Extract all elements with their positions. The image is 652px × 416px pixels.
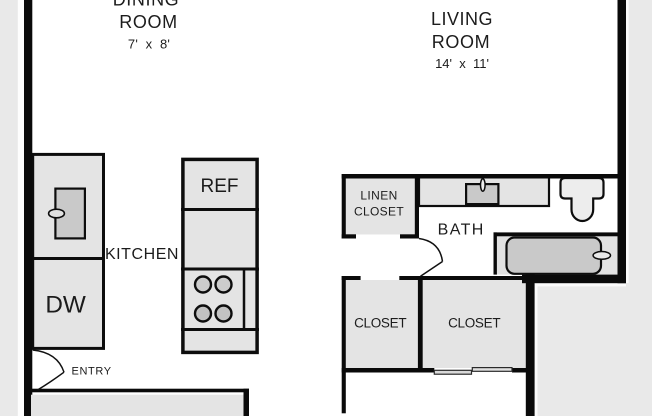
svg-text:ROOM: ROOM bbox=[119, 12, 177, 32]
svg-text:BATH: BATH bbox=[438, 222, 485, 239]
svg-text:CLOSET: CLOSET bbox=[354, 316, 406, 331]
svg-text:LINEN: LINEN bbox=[360, 189, 397, 203]
svg-text:REF: REF bbox=[201, 176, 239, 197]
svg-text:DW: DW bbox=[45, 292, 86, 319]
svg-text:7' x 8': 7' x 8' bbox=[128, 37, 170, 52]
svg-text:14' x 11': 14' x 11' bbox=[435, 56, 489, 71]
svg-text:LIVING: LIVING bbox=[431, 9, 493, 29]
svg-text:ROOM: ROOM bbox=[432, 32, 490, 52]
svg-text:CLOSET: CLOSET bbox=[354, 205, 404, 219]
svg-text:ENTRY: ENTRY bbox=[72, 366, 112, 378]
svg-text:KITCHEN: KITCHEN bbox=[105, 246, 179, 263]
svg-text:CLOSET: CLOSET bbox=[448, 316, 500, 331]
svg-text:DINING: DINING bbox=[113, 0, 180, 10]
